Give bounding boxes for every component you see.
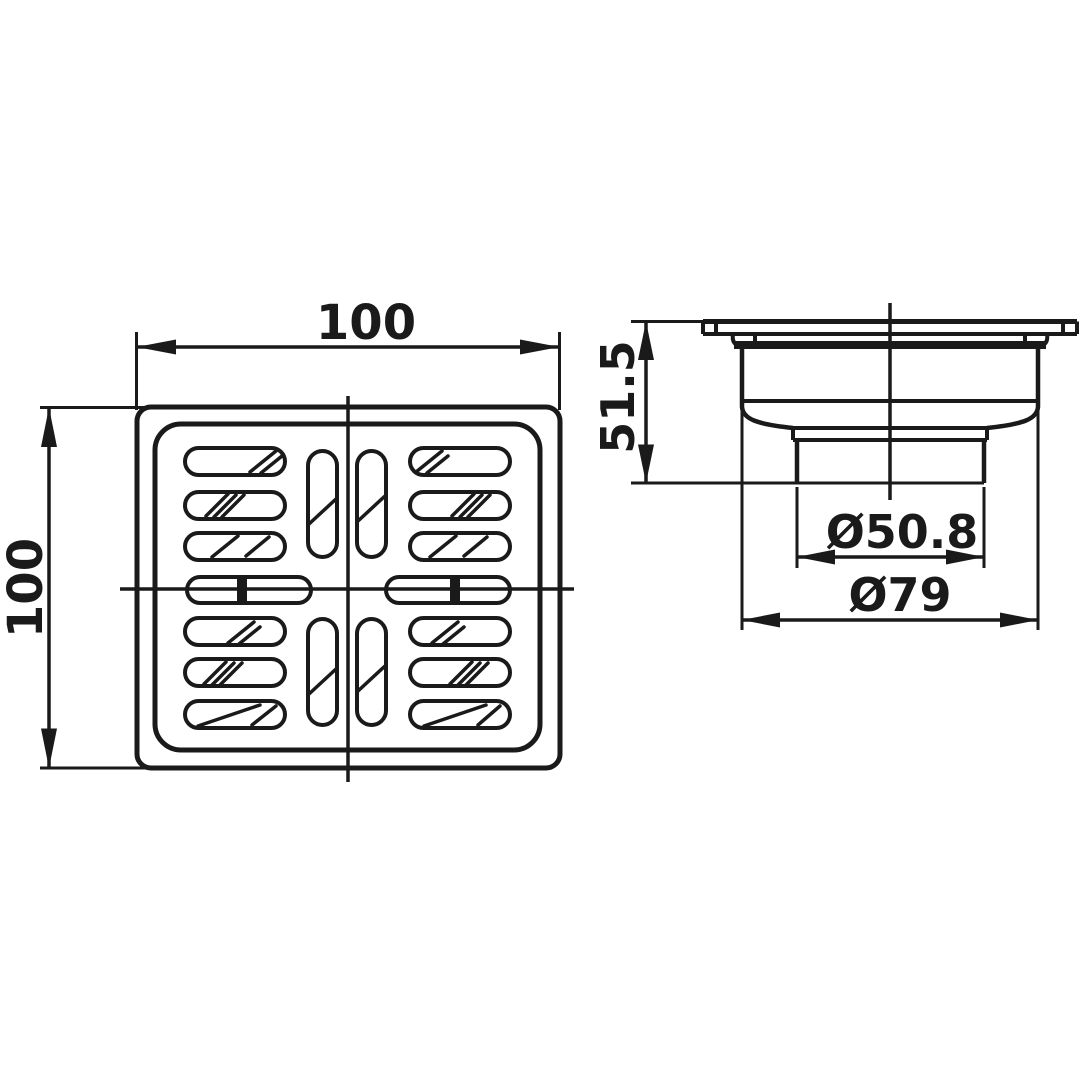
side-view-body: 51.5 Ø50.8 Ø79: [591, 303, 1077, 630]
arrowhead-down: [41, 729, 57, 769]
hatch-lines: [432, 622, 464, 644]
hatch-lines: [212, 536, 269, 557]
arrowhead-right: [1000, 613, 1038, 628]
dim-body-diameter-label: Ø79: [848, 568, 951, 622]
hatch-lines: [206, 494, 244, 517]
grate-slot: [410, 492, 510, 519]
arrowhead-right: [520, 340, 560, 355]
grate-slot-vertical: [357, 451, 386, 557]
dim-pipe-diameter-label: Ø50.8: [826, 505, 979, 559]
grate-slot: [410, 659, 510, 686]
technical-drawing-canvas: 100 100: [0, 0, 1090, 1090]
hatch-lines: [228, 622, 260, 644]
grate-slot: [185, 533, 285, 560]
dim-grate-height-label: 100: [0, 538, 54, 638]
grate-slot: [410, 533, 510, 560]
grate-slot: [185, 659, 285, 686]
arrowhead-up: [41, 408, 57, 448]
grate-slot-vertical: [308, 451, 337, 557]
funnel-left: [742, 401, 793, 428]
arrowhead-left: [742, 613, 780, 628]
grate-slot-vertical: [308, 619, 337, 725]
funnel-right: [987, 401, 1038, 428]
hatch-lines: [424, 705, 500, 726]
grate-slot: [410, 448, 510, 475]
hatch-lines: [198, 705, 276, 726]
hatch-lines: [416, 451, 448, 473]
grate-slot: [410, 701, 510, 728]
hatch-lines: [204, 662, 242, 685]
hatch-lines: [452, 494, 490, 517]
hatch-lines: [450, 662, 488, 685]
top-view-grate: 100 100: [0, 295, 574, 782]
grate-slot: [185, 448, 285, 475]
dimension-grate-width: 100: [137, 295, 560, 410]
dim-grate-width-label: 100: [316, 295, 416, 351]
hatch-lines: [250, 451, 282, 473]
hatch-lines: [430, 536, 487, 557]
arrowhead-left: [137, 340, 177, 355]
drawing-page: 100 100: [0, 0, 1090, 1090]
grate-slot: [185, 492, 285, 519]
grate-slot: [185, 618, 285, 645]
grate-slot-vertical: [357, 619, 386, 725]
grate-slot: [410, 618, 510, 645]
grate-slot: [185, 701, 285, 728]
dim-body-height-label: 51.5: [591, 340, 645, 454]
